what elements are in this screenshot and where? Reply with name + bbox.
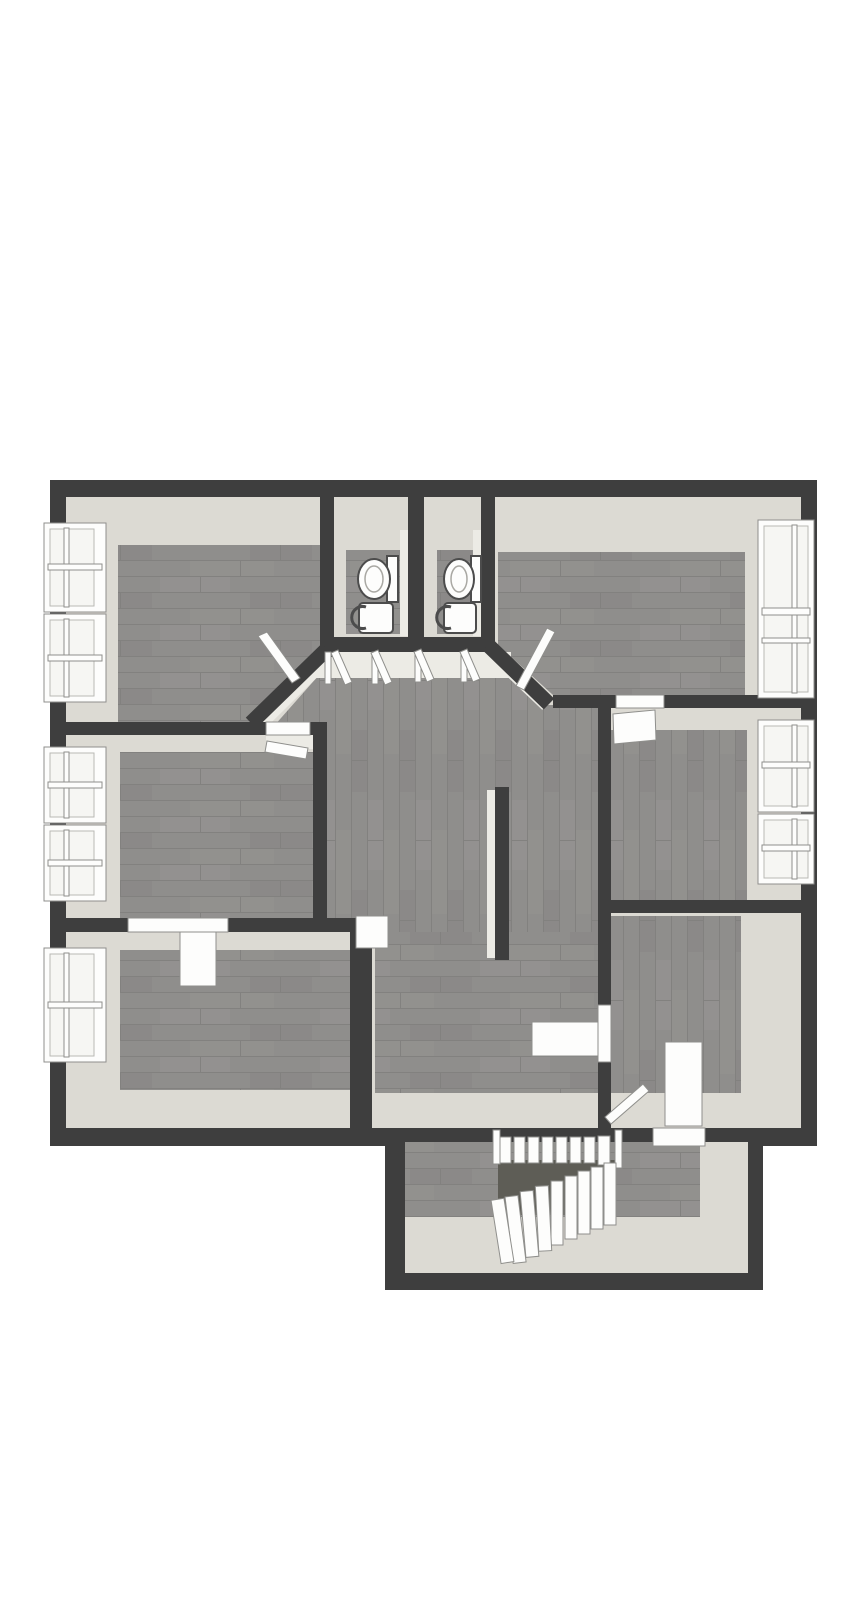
wall-topleft-wc [320,497,334,657]
floorplan-canvas [0,0,867,1600]
wall-hall-stub [495,787,509,960]
wc-left-wall-face [400,530,408,636]
floor-bedroom-top-right [498,552,745,695]
door-leaf-bedroom-middle-right [613,710,656,744]
floor-bedroom-middle-left [120,752,313,918]
window-bottomleft [44,948,106,1062]
window-middleright-lower [758,814,814,884]
toilet-icon [358,556,398,602]
door-opening-middle-right [616,695,664,708]
door-jamb [325,652,331,684]
floor-bedroom-bottom-left [120,950,352,1090]
floor-room-bottom-middle [375,932,598,1093]
door-leaf-hall-passage [356,916,388,948]
wall-wc-topright [481,497,495,637]
window-topleft-lower [44,614,106,702]
door-opening-corridor-bottomright [598,1005,611,1062]
wall-middleright-west [598,695,611,913]
wall-topleft-south-a [66,722,266,735]
wall-middleleft-east [313,722,327,932]
toilet-icon [444,556,481,602]
floor-hall-main [327,708,497,932]
door-opening-bottomright-south [653,1128,705,1146]
door-opening-bottom-left [128,918,228,932]
window-middleleft-upper [44,747,106,823]
door-leaf-corridor-bottomright [532,1022,598,1056]
door-leaf-bedroom-bottom-left [180,932,216,986]
floor-hall-arm [481,705,598,787]
wall-wc-south [320,637,495,652]
window-topleft-upper [44,523,106,612]
door-leaf-bottomright-south [665,1042,702,1126]
stub-wall-face [487,790,495,958]
window-topright [758,520,814,698]
window-middleleft-lower [44,825,106,901]
window-middleright-upper [758,720,814,812]
floorplan-rendering [0,0,867,1600]
floor-bedroom-middle-right [611,730,747,900]
wall-bottomleft-east [350,918,372,1128]
wall-middleright-south [611,900,802,913]
door-opening-middle-left [266,722,310,735]
wall-between-wcs [408,497,424,637]
